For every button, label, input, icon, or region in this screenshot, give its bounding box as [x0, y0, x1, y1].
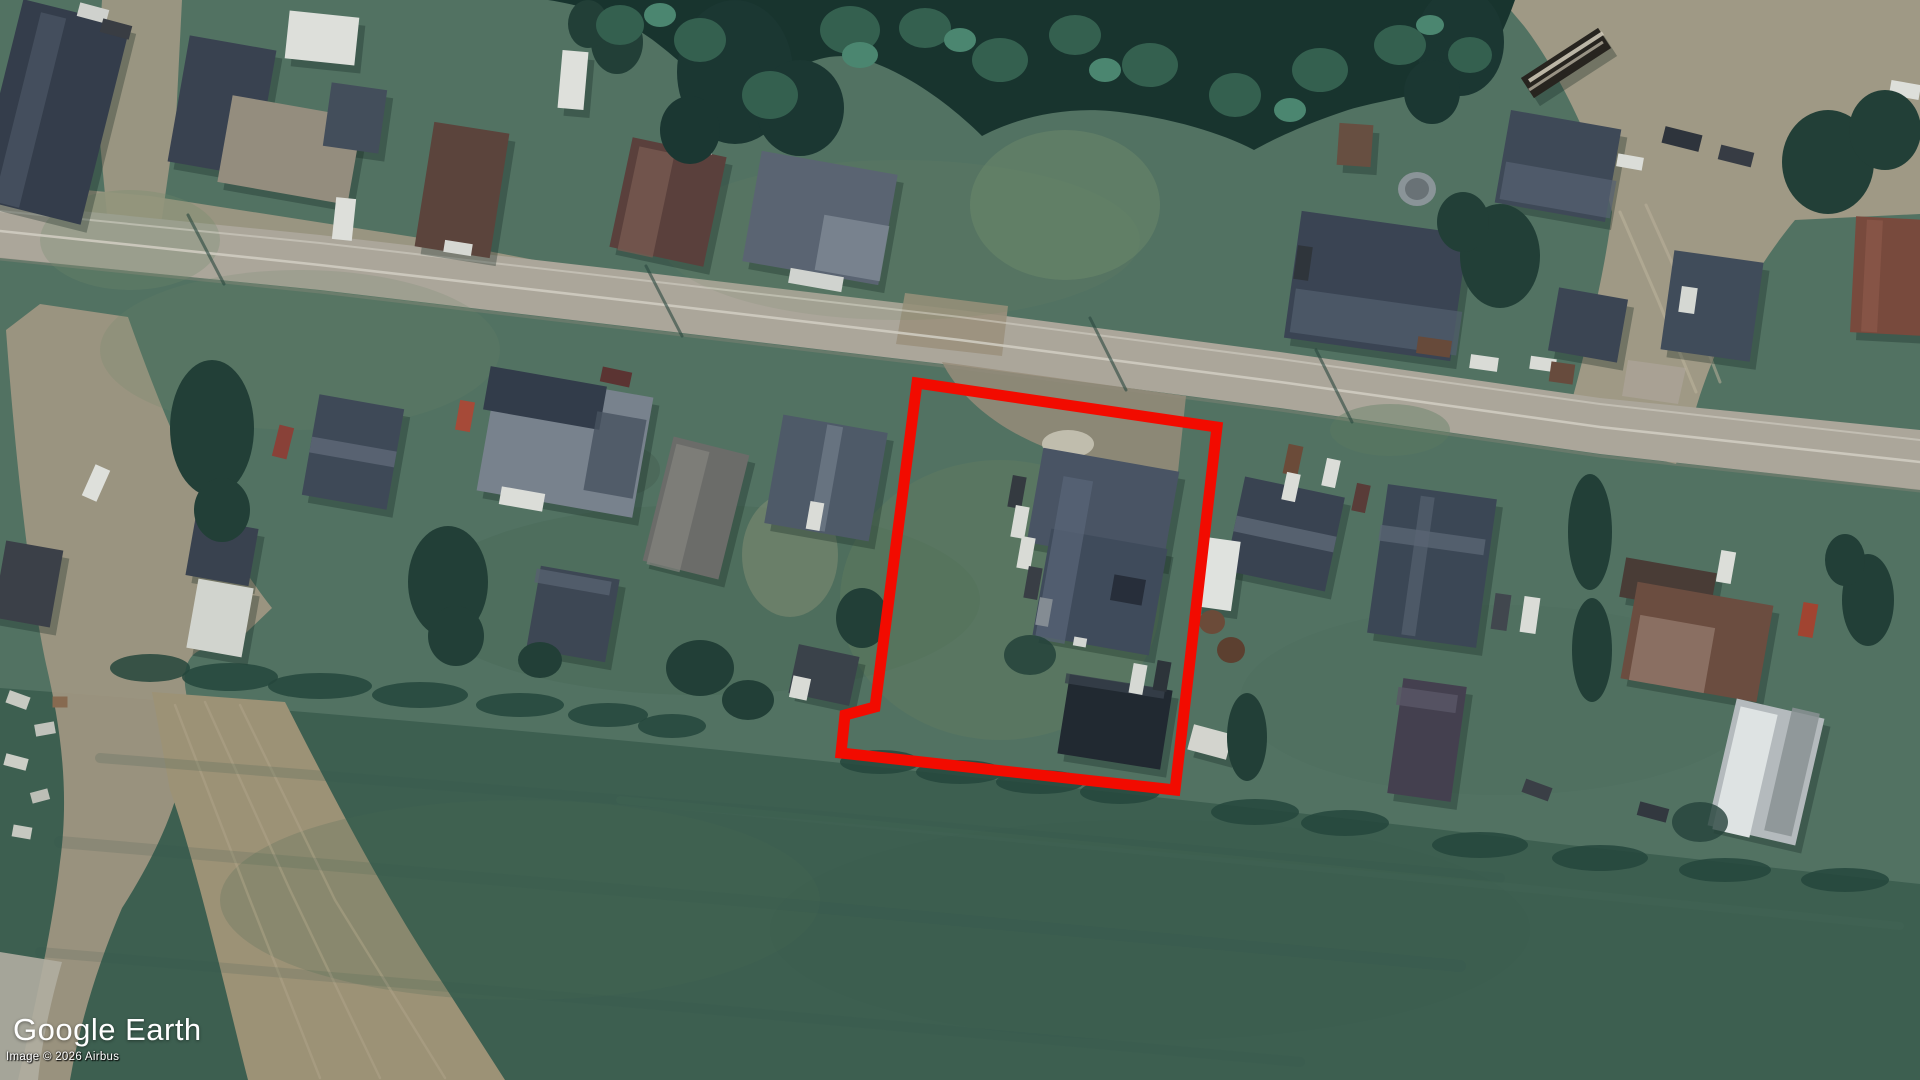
- imagery-attribution: Image © 2026 Airbus: [6, 1051, 119, 1063]
- satellite-imagery: [0, 0, 1920, 1080]
- color-tint: [0, 0, 1920, 1080]
- google-earth-viewport[interactable]: Google Earth Image © 2026 Airbus: [0, 0, 1920, 1080]
- google-earth-logo: Google Earth: [13, 1012, 202, 1048]
